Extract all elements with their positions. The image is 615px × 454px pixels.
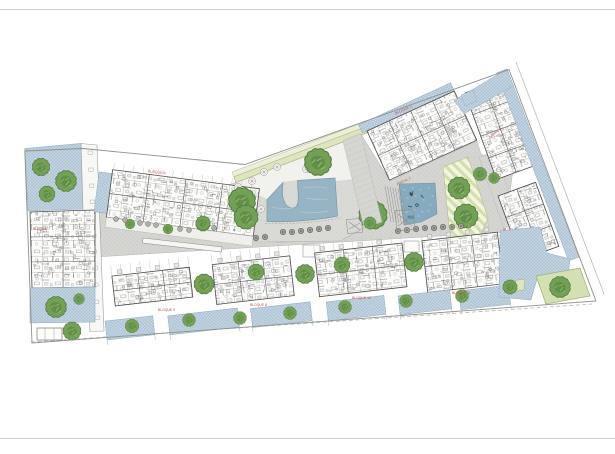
svg-text:BLOQUE 7: BLOQUE 7 <box>33 227 50 231</box>
svg-text:BLOQUE 8: BLOQUE 8 <box>250 303 267 307</box>
svg-text:BLOQUE 11: BLOQUE 11 <box>452 291 471 295</box>
svg-text:BLOQUE 9: BLOQUE 9 <box>158 308 175 312</box>
svg-text:BLOQUE 10: BLOQUE 10 <box>352 296 371 300</box>
